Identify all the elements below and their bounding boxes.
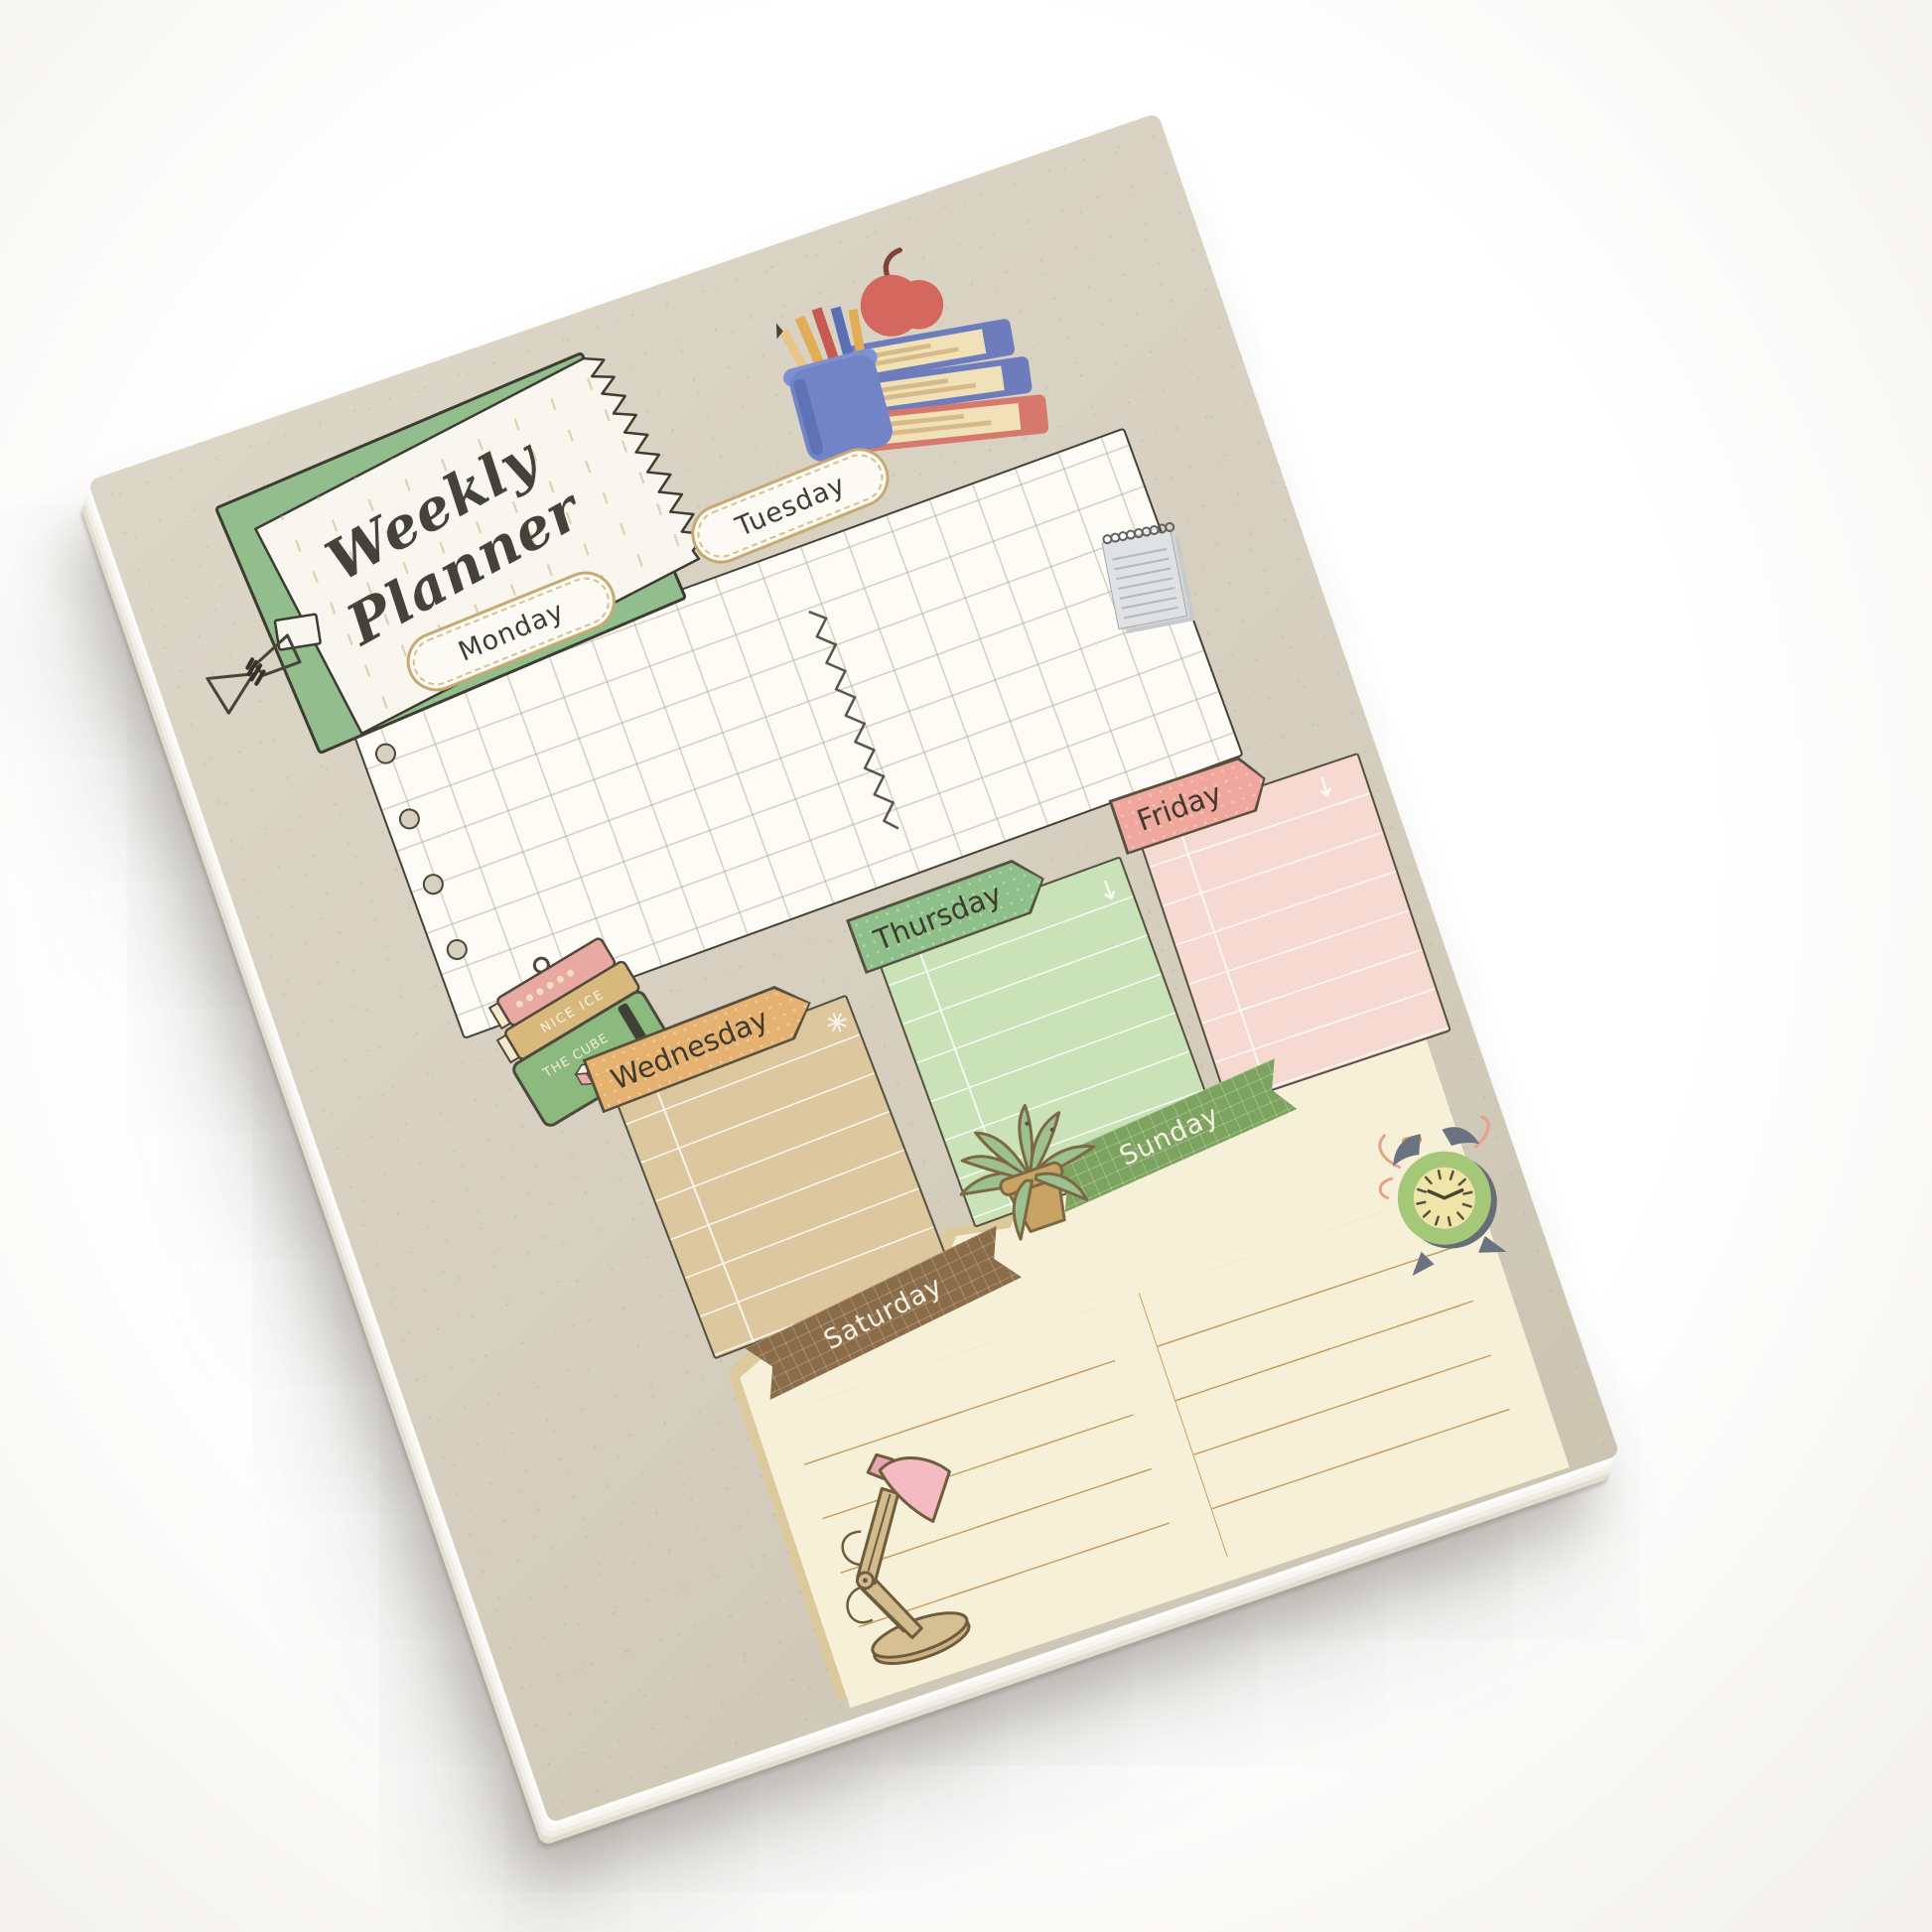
punch-hole	[420, 871, 447, 897]
spiral-notepad-icon	[1089, 507, 1209, 645]
planner-notepad: Weekly Planner	[87, 112, 1619, 1823]
apple-icon	[848, 242, 948, 343]
tuesday-text: Tuesday	[731, 469, 850, 542]
punch-hole	[372, 741, 399, 767]
punch-hole	[444, 936, 471, 963]
photo-background: Weekly Planner	[0, 0, 1932, 1932]
zigzag-stitch	[802, 602, 912, 846]
punch-hole	[396, 805, 423, 832]
alarm-clock-icon	[1352, 1096, 1536, 1284]
